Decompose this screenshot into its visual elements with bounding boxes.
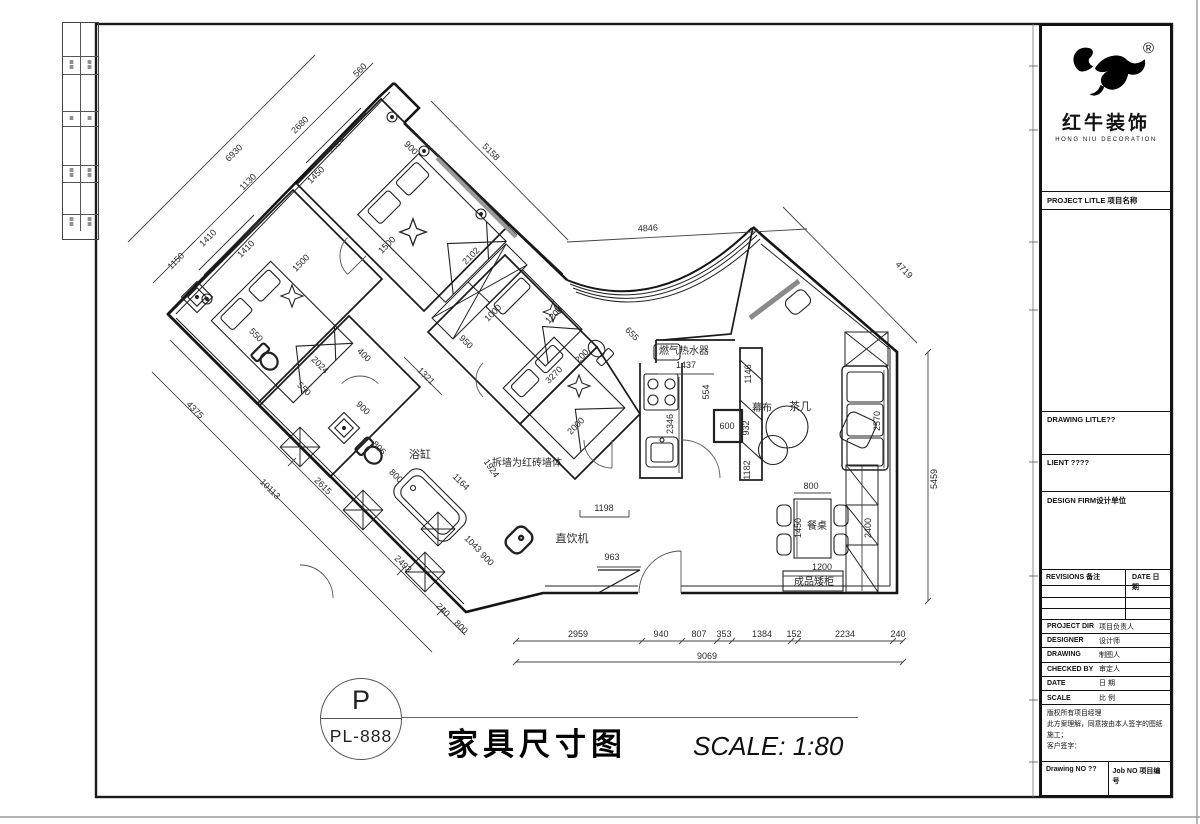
- dim-label: 353: [716, 629, 731, 639]
- label-dining-table: 餐桌: [807, 519, 827, 532]
- chair: [777, 534, 791, 555]
- sheet-frame: [0, 0, 1200, 824]
- dim-label: 2346: [665, 414, 675, 434]
- dimension-lines: [128, 55, 931, 665]
- strip-cell: ≣≣: [81, 166, 98, 182]
- inner-wall-lines: [176, 92, 890, 604]
- dim-label: 900: [478, 550, 496, 568]
- design-firm-row: DESIGN FIRM设计单位: [1042, 492, 1170, 570]
- dim-label: 2234: [835, 629, 855, 639]
- strip-row: ≣≣ ≣≣: [63, 57, 98, 75]
- info-row: DATE日 期: [1042, 677, 1170, 691]
- door-swings: [300, 238, 720, 598]
- dim-label: 900: [354, 399, 372, 417]
- label-water-dispenser: 直饮机: [556, 531, 589, 545]
- drawing-title-row: DRAWING LITLE??: [1042, 412, 1170, 455]
- strip-row: [63, 127, 98, 166]
- label-screen: 幕布: [752, 401, 772, 414]
- floor-plan-svg: 5602680693011301410115013241450900150014…: [0, 0, 1200, 824]
- revisions-row: [1042, 585, 1170, 586]
- revisions-row: [1042, 608, 1170, 609]
- dim-label: 1384: [752, 629, 772, 639]
- toilet-bold: [251, 343, 282, 374]
- furniture: [181, 112, 888, 591]
- hongniu-bull-icon: [1060, 40, 1152, 106]
- dim-label: 1500: [376, 234, 397, 255]
- dim-label: 400: [355, 346, 373, 364]
- dim-label: 1200: [812, 562, 832, 572]
- drawing-no-label: Drawing NO ??: [1042, 762, 1109, 797]
- drawing-code: PL-888: [321, 726, 401, 747]
- dim-label: 152: [786, 629, 801, 639]
- title-block: ® 红牛装饰 HONG NIU DECORATION PROJECT LITLE…: [1040, 24, 1172, 797]
- date-col-header: DATE 日期: [1128, 570, 1170, 594]
- strip-row: ≣ ≣: [63, 112, 98, 127]
- info-row: DESIGNER设计师: [1042, 634, 1170, 648]
- label-low-cabinet: 成品矮柜: [794, 575, 834, 588]
- water-dispenser: [503, 524, 536, 557]
- chair: [777, 505, 791, 526]
- outer-walls: [168, 83, 897, 612]
- strip-row: ≣≣ ≣≣: [63, 215, 98, 231]
- dim-label: 550: [295, 380, 313, 398]
- project-title-label: PROJECT LITLE 项目名称: [1042, 192, 1170, 206]
- washer: [328, 412, 359, 443]
- dim-label: 554: [701, 384, 711, 399]
- bed-small: [503, 337, 625, 459]
- strip-cell: ≣: [81, 112, 98, 126]
- dim-label: 240: [434, 601, 452, 619]
- dim-label: 4375: [185, 399, 206, 420]
- dim-label: 900: [402, 139, 420, 157]
- dim-label: 1450: [793, 518, 803, 538]
- bed-left: [211, 261, 352, 402]
- dim-label: 1130: [237, 171, 258, 192]
- label-gas-heater: 燃气热水器: [659, 344, 709, 357]
- info-rows: PROJECT DIR项目负责人 DESIGNER设计师 DRAWING制图人 …: [1042, 620, 1170, 705]
- dim-label: 1437: [676, 360, 696, 370]
- dim-label: 1321: [416, 365, 437, 386]
- dim-label: 9069: [697, 651, 717, 661]
- strip-cell: ≣≣: [63, 57, 81, 74]
- revisions-row: [1042, 597, 1170, 598]
- dim-label: 2680: [289, 114, 310, 135]
- revisions-col-header: REVISIONS 备注: [1042, 570, 1128, 594]
- dim-label: 800: [803, 481, 818, 491]
- job-no-label: Job NO 项目编号: [1109, 762, 1170, 797]
- sliding-window-band: [437, 158, 516, 237]
- revisions-divider: [1125, 570, 1126, 619]
- registered-mark: ®: [1143, 40, 1154, 57]
- dim-label: 10113: [258, 477, 282, 501]
- notice-line: 客户签字：: [1047, 742, 1165, 753]
- bed-star-icon: [281, 285, 303, 307]
- code-prefix: P: [321, 685, 401, 716]
- revisions-table: REVISIONS 备注 DATE 日期: [1042, 570, 1170, 620]
- dim-label: 655: [623, 325, 641, 343]
- dim-label: 1146: [743, 364, 753, 383]
- dim-label: 560: [351, 61, 369, 79]
- dim-label: 2024: [310, 354, 331, 375]
- dim-label: 5459: [929, 469, 939, 489]
- notice-block: 版权所有项目经理 此方案理解，同意按由本人签字的图纸施工； 客户签字：: [1042, 705, 1170, 762]
- strip-cell: ≣≣: [63, 215, 81, 231]
- dim-label: 1450: [305, 164, 326, 185]
- dim-label: 950: [457, 333, 475, 351]
- strip-cell: ≣≣: [63, 166, 81, 182]
- strip-row: [63, 183, 98, 215]
- strip-row: [63, 23, 98, 57]
- dim-label: 1182: [742, 460, 752, 479]
- strip-cell: ≣≣: [81, 215, 98, 231]
- dim-label: 550: [247, 326, 265, 344]
- client-label: LIENT ????: [1042, 455, 1170, 467]
- sheet-margin-strip: ≣≣ ≣≣ ≣ ≣ ≣≣ ≣≣ ≣≣ ≣≣: [62, 22, 99, 240]
- dim-label: 1043: [463, 533, 484, 554]
- strip-row: [63, 75, 98, 112]
- project-title-row: PROJECT LITLE 项目名称: [1042, 192, 1170, 210]
- room-bedroom-left: [168, 190, 382, 404]
- notice-line: 版权所有项目经理: [1047, 709, 1165, 720]
- dim-label: 2400: [863, 518, 873, 538]
- dim-label: 4719: [894, 259, 915, 280]
- frame-ticks: [1029, 66, 1038, 762]
- dim-label: 1500: [290, 252, 311, 273]
- note-brick-wall: 拆墙为红砖墙体: [492, 456, 562, 469]
- dim-label: 1200: [543, 304, 564, 325]
- strip-row: ≣≣ ≣≣: [63, 166, 98, 183]
- design-firm-label: DESIGN FIRM设计单位: [1042, 492, 1170, 506]
- dim-label: 1410: [197, 227, 218, 248]
- dim-label: 1150: [165, 250, 186, 271]
- info-row: PROJECT DIR项目负责人: [1042, 620, 1170, 634]
- dim-label: 2000: [565, 415, 586, 436]
- drawing-title-label: DRAWING LITLE??: [1042, 412, 1170, 424]
- room-bedroom-top: [297, 99, 508, 311]
- client-row: LIENT ????: [1042, 455, 1170, 492]
- sheet-title: 家具尺寸图: [447, 719, 627, 764]
- dim-label: 5158: [481, 141, 502, 162]
- dim-label: 800: [452, 618, 470, 636]
- strip-cell: ≣: [63, 112, 81, 126]
- dim-label: 963: [604, 552, 619, 562]
- dim-label: 940: [653, 629, 668, 639]
- dim-label: 240: [890, 629, 905, 639]
- drawing-sheet: 5602680693011301410115013241450900150014…: [0, 0, 1200, 824]
- info-row: CHECKED BY审定人: [1042, 663, 1170, 677]
- drawing-code-bubble: P PL-888: [320, 678, 402, 760]
- plan-labels: 5602680693011301410115013241450900150014…: [165, 61, 939, 661]
- footer-row: Drawing NO ?? Job NO 项目编号: [1042, 762, 1170, 797]
- brand-name-en: HONG NIU DECORATION: [1055, 137, 1157, 143]
- code-divider: [321, 718, 401, 719]
- dim-label: 6930: [223, 142, 244, 163]
- notice-line: 此方案理解，同意按由本人签字的图纸施工；: [1047, 720, 1165, 742]
- dim-label: 200: [573, 347, 591, 365]
- dim-label: 800: [387, 467, 405, 485]
- logo-box: ® 红牛装饰 HONG NIU DECORATION: [1042, 26, 1170, 192]
- project-title-space: [1042, 210, 1170, 412]
- sheet-scale: SCALE: 1:80: [693, 731, 843, 762]
- info-row: SCALE比 例: [1042, 691, 1170, 705]
- dim-label: 2959: [568, 629, 588, 639]
- bed-star-icon: [568, 375, 590, 397]
- bed-star-icon: [400, 219, 426, 245]
- label-tea-table: 茶几: [789, 400, 811, 413]
- title-underline: [401, 717, 858, 718]
- dim-label: 1164: [451, 471, 472, 492]
- dim-label: 1198: [594, 503, 613, 513]
- dim-label: 600: [719, 421, 734, 431]
- info-row: DRAWING制图人: [1042, 648, 1170, 662]
- dim-label: 807: [691, 629, 706, 639]
- dim-label: 2570: [872, 411, 882, 431]
- brand-name: 红牛装饰: [1062, 108, 1150, 135]
- dim-label: 4846: [638, 222, 659, 233]
- room-label-bathtub: 浴缸: [409, 447, 431, 461]
- dim-label: 932: [741, 420, 751, 435]
- strip-cell: ≣≣: [81, 57, 98, 74]
